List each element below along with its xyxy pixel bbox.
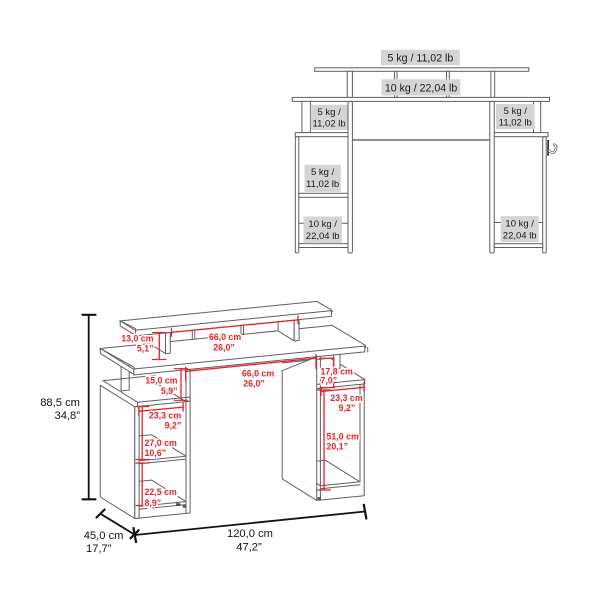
svg-text:10,6”: 10,6” <box>145 448 167 458</box>
svg-text:5,9”: 5,9” <box>161 386 178 396</box>
svg-text:5 kg / 11,02 lb: 5 kg / 11,02 lb <box>388 53 454 65</box>
svg-text:66,0 cm: 66,0 cm <box>242 369 274 379</box>
svg-text:10 kg /: 10 kg / <box>505 219 534 230</box>
svg-text:5 kg /: 5 kg / <box>317 107 341 118</box>
svg-text:23,3 cm: 23,3 cm <box>149 411 181 421</box>
svg-text:11,02 lb: 11,02 lb <box>313 118 346 129</box>
svg-text:120,0 cm: 120,0 cm <box>227 528 273 540</box>
svg-text:5,1”: 5,1” <box>137 344 154 354</box>
svg-text:13,0 cm: 13,0 cm <box>121 334 153 344</box>
svg-text:5 kg /: 5 kg / <box>311 167 335 178</box>
svg-text:26,0”: 26,0” <box>213 343 235 353</box>
svg-text:22,04 lb: 22,04 lb <box>503 231 537 242</box>
svg-text:11,02 lb: 11,02 lb <box>306 179 339 190</box>
svg-text:23,3 cm: 23,3 cm <box>330 393 362 403</box>
svg-text:8,9”: 8,9” <box>145 498 162 508</box>
svg-text:10 kg / 22,04 lb: 10 kg / 22,04 lb <box>385 83 458 95</box>
svg-text:22,04 lb: 22,04 lb <box>306 231 340 242</box>
svg-text:9,2”: 9,2” <box>339 403 356 413</box>
svg-text:66,0 cm: 66,0 cm <box>209 332 241 342</box>
svg-text:26,0”: 26,0” <box>243 379 265 389</box>
svg-text:51,0 cm: 51,0 cm <box>327 432 359 442</box>
svg-text:47,2”: 47,2” <box>236 542 262 554</box>
svg-text:9,2”: 9,2” <box>165 421 182 431</box>
svg-text:7,0”: 7,0” <box>321 375 338 385</box>
svg-text:88,5 cm: 88,5 cm <box>40 397 80 409</box>
svg-text:5 kg /: 5 kg / <box>504 106 528 117</box>
svg-text:11,02 lb: 11,02 lb <box>499 118 532 129</box>
svg-text:45,0 cm: 45,0 cm <box>84 530 124 542</box>
svg-text:22,5 cm: 22,5 cm <box>145 487 177 497</box>
svg-text:15,0 cm: 15,0 cm <box>145 376 177 386</box>
svg-text:27,0 cm: 27,0 cm <box>145 438 177 448</box>
svg-text:34,8”: 34,8” <box>55 410 81 422</box>
svg-text:20,1”: 20,1” <box>327 442 349 452</box>
svg-text:17,7”: 17,7” <box>86 543 112 555</box>
svg-text:10 kg /: 10 kg / <box>308 219 337 230</box>
